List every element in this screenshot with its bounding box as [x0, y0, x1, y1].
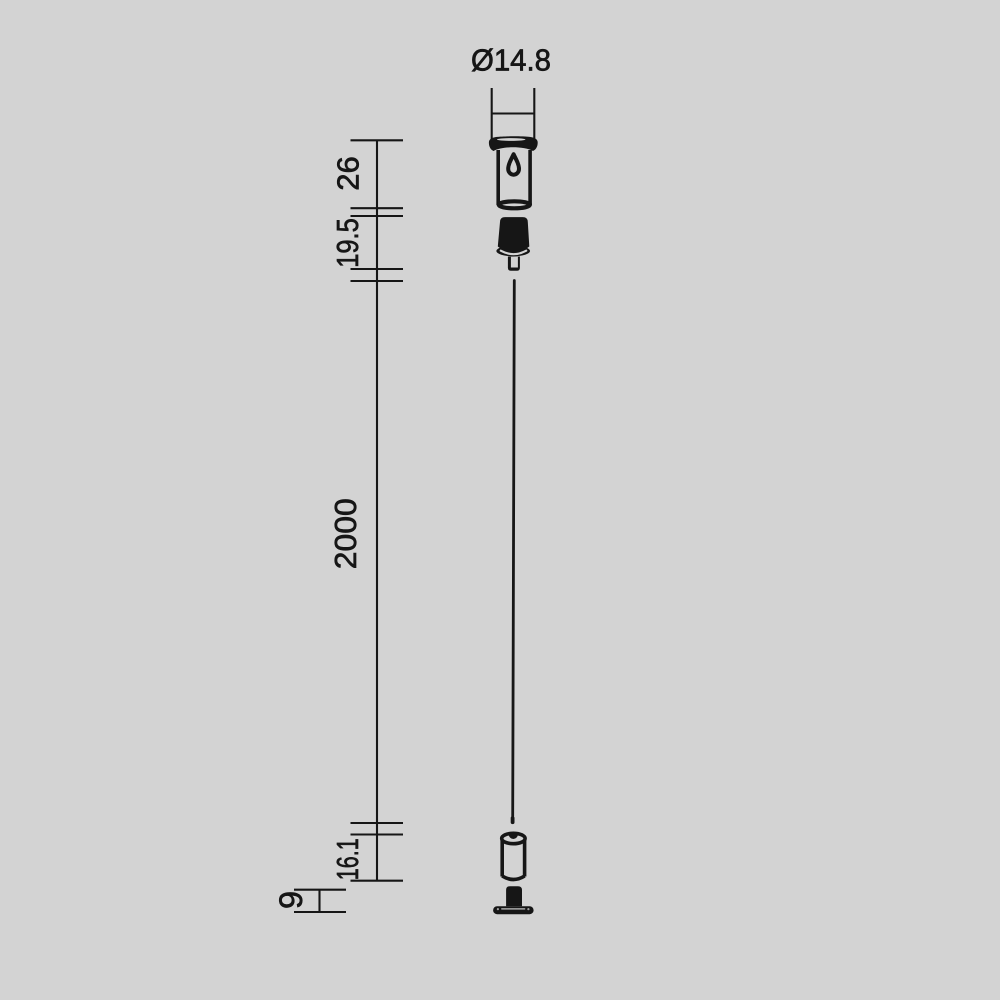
svg-text:9: 9: [273, 891, 309, 909]
svg-text:Ø14.8: Ø14.8: [471, 44, 551, 78]
svg-text:16.1: 16.1: [330, 838, 365, 880]
svg-text:2000: 2000: [328, 498, 363, 569]
svg-text:19.5: 19.5: [330, 218, 365, 268]
svg-text:26: 26: [331, 156, 366, 191]
